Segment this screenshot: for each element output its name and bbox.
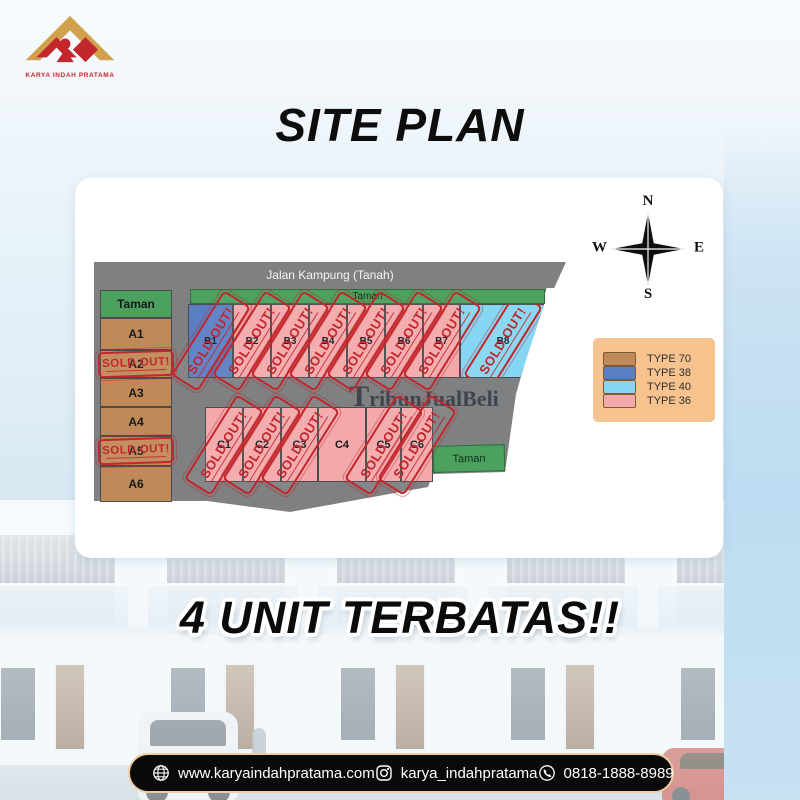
unit-label: A4 [128,415,143,429]
legend-swatch [603,394,636,408]
road: Jalan Kampung (Tanah) [94,262,566,288]
phone-text: 0818-1888-8989 [564,765,674,782]
legend-item: TYPE 40 [603,380,715,394]
park-cell: Taman [100,290,172,318]
sold-out-stamp: SOLD OUT! [98,350,175,379]
legend-label: TYPE 70 [647,353,691,365]
brand-logo-icon [18,12,122,66]
unit-label: C4 [335,439,349,451]
legend-label: TYPE 38 [647,367,691,379]
unit-label: A6 [128,477,143,491]
park-label: Taman [452,452,485,465]
legend: TYPE 70TYPE 38TYPE 40TYPE 36 [593,338,715,422]
legend-swatch [603,380,636,394]
unit-A1: A1 [100,318,172,350]
sold-out-stamp: SOLD OUT! [98,437,175,466]
instagram-group: karya_indahpratama [375,764,538,782]
unit-A2: A2SOLD OUT! [100,350,172,378]
phone-icon [538,764,556,782]
instagram-icon [375,764,393,782]
brand-logo: KARYA INDAH PRATAMA [18,12,122,79]
globe-icon [152,764,170,782]
compass-south-label: S [644,286,652,303]
compass-east-label: E [694,240,704,257]
page-title: SITE PLAN [0,98,800,152]
tagline: 4 UNIT TERBATAS!! [0,592,800,644]
legend-item: TYPE 36 [603,394,715,408]
phone-group: 0818-1888-8989 [538,764,674,782]
legend-label: TYPE 40 [647,381,691,393]
legend-swatch [603,352,636,366]
site-plan-poster: KARYA INDAH PRATAMA SITE PLAN Jalan Kamp… [0,0,800,800]
compass-star-icon [612,213,684,285]
website-group: www.karyaindahpratama.com [152,764,375,782]
unit-label: A1 [128,327,143,341]
unit-label: Taman [117,297,155,311]
unit-A5: A5SOLD OUT! [100,436,172,466]
unit-label: A3 [128,386,143,400]
unit-A3: A3 [100,378,172,407]
legend-item: TYPE 70 [603,352,715,366]
footer-contact-bar: www.karyaindahpratama.com karya_indahpra… [128,753,674,793]
legend-label: TYPE 36 [647,395,691,407]
unit-A6: A6 [100,466,172,502]
instagram-text: karya_indahpratama [401,765,538,782]
park-box-right: Taman [433,444,506,473]
unit-A4: A4 [100,407,172,436]
legend-swatch [603,366,636,380]
compass-west-label: W [592,240,607,257]
brand-name: KARYA INDAH PRATAMA [18,72,122,79]
website-text: www.karyaindahpratama.com [178,765,375,782]
compass-rose: N S W E [598,196,698,300]
legend-item: TYPE 38 [603,366,715,380]
road-label: Jalan Kampung (Tanah) [266,268,393,282]
compass-north-label: N [643,193,654,210]
